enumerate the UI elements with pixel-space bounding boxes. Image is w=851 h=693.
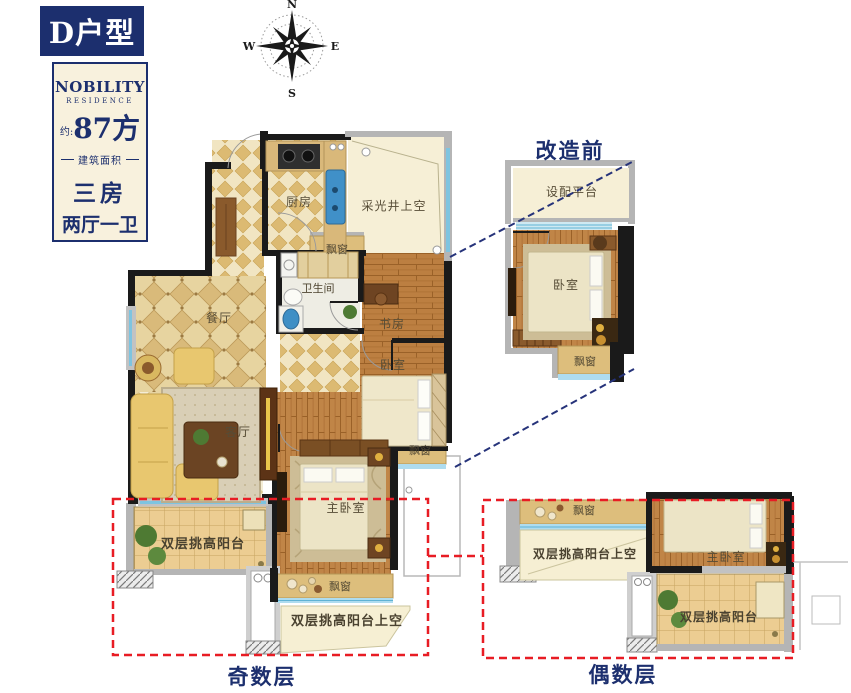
- compass-south: S: [288, 87, 296, 100]
- floor-plan-page: N S E W: [0, 0, 851, 693]
- label-even-balcony-void: 双层挑高阳台上空: [533, 546, 637, 561]
- label-bathroom: 卫生间: [302, 281, 335, 295]
- unit-type-label: D户型: [49, 10, 135, 52]
- compass-east: E: [331, 40, 339, 53]
- label-before-bay-window: 飘窗: [574, 354, 596, 368]
- label-light-well: 采光井上空: [361, 199, 426, 213]
- even-floor-plan: 飘窗 双层挑高阳台上空 主卧室 双层挑高阳台: [500, 492, 848, 652]
- label-dining-room: 餐厅: [206, 310, 232, 325]
- before-renovation-plan: 改造前 设配平台 卧室 飘窗: [505, 139, 635, 382]
- main-floor-plan: 厨房 采光井上空 飘窗 卫生间 餐厅 书房 卧室 客厅 飘窗 主卧室 双层挑高阳…: [117, 131, 460, 654]
- divider-line-right: [126, 159, 139, 160]
- area-caption-divider: 建筑面积: [61, 152, 139, 167]
- label-even-bay-window: 飘窗: [573, 503, 595, 517]
- caption-before-renovation: 改造前: [536, 139, 605, 163]
- label-equipment-platform: 设配平台: [546, 184, 598, 199]
- area-caption: 建筑面积: [78, 152, 122, 167]
- label-study: 书房: [379, 316, 405, 331]
- layout-rooms: 三房: [73, 174, 127, 208]
- label-balcony: 双层挑高阳台: [161, 536, 245, 551]
- compass-north: N: [287, 0, 297, 11]
- label-even-master-bedroom: 主卧室: [706, 549, 745, 564]
- divider-line-left: [61, 159, 74, 160]
- unit-type-badge: D户型: [40, 6, 144, 56]
- label-bay-window-top: 飘窗: [326, 242, 348, 256]
- brand-name: NOBILITY: [55, 78, 145, 96]
- label-balcony-void: 双层挑高阳台上空: [291, 613, 403, 628]
- unit-info-card: NOBILITY RESIDENCE 约: 87方 建筑面积 三房 两厅一卫: [52, 62, 148, 242]
- furniture-entry: [216, 198, 236, 256]
- label-bay-window-right: 飘窗: [409, 443, 431, 457]
- label-master-bedroom: 主卧室: [326, 500, 365, 515]
- label-bay-window-bottom: 飘窗: [329, 579, 351, 593]
- compass-rose: N S E W: [242, 0, 339, 100]
- label-kitchen: 厨房: [286, 194, 312, 209]
- layout-halls: 两厅一卫: [62, 210, 138, 237]
- area-row: 约: 87方: [60, 115, 140, 143]
- caption-even-floors: 偶数层: [589, 664, 658, 687]
- label-living-room: 客厅: [225, 424, 251, 439]
- label-before-bedroom: 卧室: [553, 277, 579, 292]
- label-even-balcony: 双层挑高阳台: [680, 609, 758, 624]
- area-value: 87方: [73, 115, 140, 143]
- label-bedroom: 卧室: [380, 357, 406, 372]
- furniture-bedroom: [362, 374, 446, 446]
- compass-west: W: [242, 40, 256, 53]
- caption-odd-floors: 奇数层: [228, 666, 297, 689]
- area-prefix: 约:: [60, 123, 73, 138]
- brand-subtitle: RESIDENCE: [66, 97, 134, 105]
